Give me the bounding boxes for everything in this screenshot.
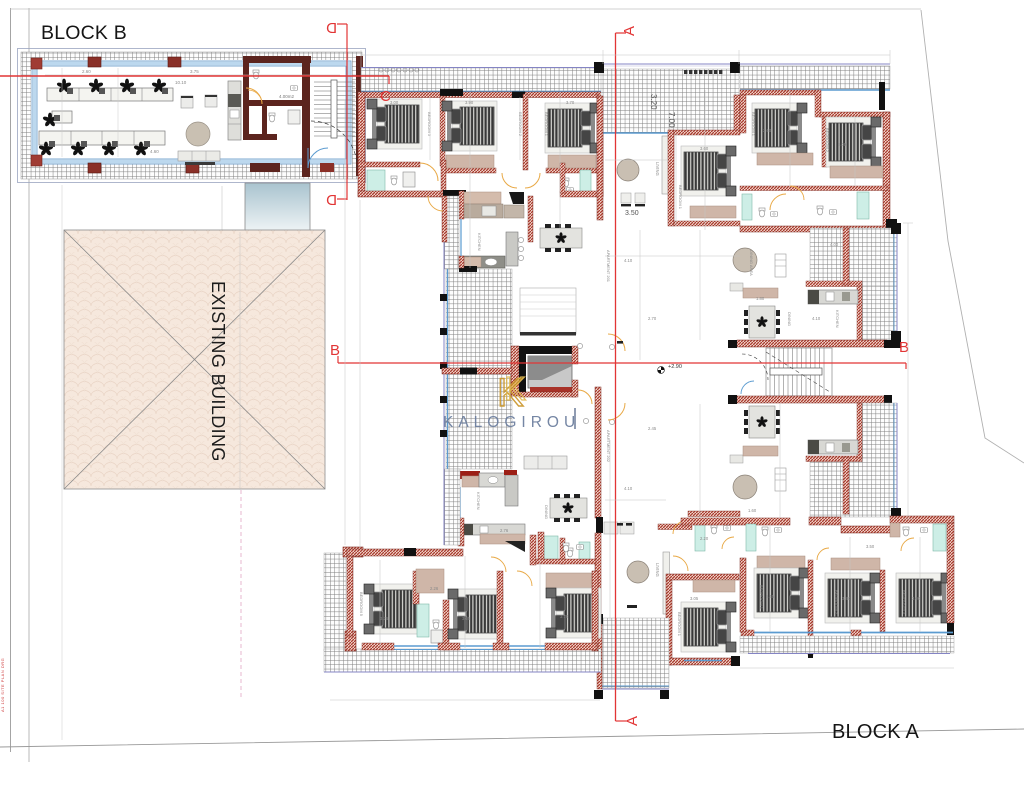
- svg-text:BEDROOM 1: BEDROOM 1: [678, 185, 683, 210]
- svg-text:K: K: [504, 370, 526, 407]
- svg-text:3.05: 3.05: [690, 596, 699, 601]
- svg-text:3.75: 3.75: [190, 69, 199, 74]
- svg-text:KITCHEN: KITCHEN: [477, 233, 482, 251]
- svg-text:3.00: 3.00: [838, 142, 847, 147]
- svg-text:EXISTING BUILDING: EXISTING BUILDING: [208, 281, 228, 462]
- svg-text:+2.90: +2.90: [668, 364, 682, 370]
- svg-text:4.00: 4.00: [830, 242, 839, 247]
- svg-text:7.00: 7.00: [667, 112, 676, 128]
- svg-text:BEDROOM 1: BEDROOM 1: [677, 612, 682, 637]
- svg-text:3.00: 3.00: [912, 596, 921, 601]
- svg-text:BEDROOM 2: BEDROOM 2: [825, 128, 830, 153]
- svg-text:4.10: 4.10: [812, 316, 821, 321]
- svg-text:4.00m2: 4.00m2: [279, 94, 295, 99]
- svg-text:BEDROOM 2: BEDROOM 2: [834, 590, 839, 615]
- svg-text:D: D: [326, 19, 337, 36]
- svg-text:LIVING: LIVING: [655, 162, 660, 176]
- svg-text:3.90: 3.90: [465, 100, 474, 105]
- svg-text:4.10: 4.10: [624, 486, 633, 491]
- svg-text:DINING: DINING: [544, 505, 549, 519]
- svg-text:BEDROOM 1: BEDROOM 1: [544, 112, 549, 137]
- svg-text:APARTMENT 201: APARTMENT 201: [606, 250, 611, 283]
- svg-text:3.65: 3.65: [766, 594, 775, 599]
- svg-text:BLOCK A: BLOCK A: [832, 721, 919, 743]
- svg-text:1.60: 1.60: [748, 508, 757, 513]
- svg-text:3.70: 3.70: [560, 614, 569, 619]
- svg-text:3.20: 3.20: [649, 94, 658, 110]
- svg-text:BEDROOM 2: BEDROOM 2: [518, 112, 523, 137]
- svg-text:BEDROOM 3: BEDROOM 3: [427, 112, 432, 137]
- svg-text:3.50: 3.50: [866, 544, 875, 549]
- svg-text:A1 100 SITE PLAN DRG: A1 100 SITE PLAN DRG: [0, 658, 5, 712]
- svg-text:APARTMENT 202: APARTMENT 202: [606, 430, 611, 463]
- svg-text:LIVING: LIVING: [655, 563, 660, 577]
- svg-text:4.60: 4.60: [150, 149, 159, 154]
- svg-text:A: A: [621, 26, 638, 36]
- svg-text:2.20: 2.20: [700, 536, 709, 541]
- svg-text:10.10: 10.10: [175, 80, 187, 85]
- svg-text:KALOGIROU: KALOGIROU: [443, 414, 580, 431]
- svg-text:3.00: 3.00: [390, 100, 399, 105]
- svg-text:2.70: 2.70: [648, 316, 657, 321]
- svg-text:B: B: [330, 342, 340, 359]
- svg-text:3.65: 3.65: [462, 616, 471, 621]
- svg-text:3.60: 3.60: [700, 146, 709, 151]
- svg-text:1.80: 1.80: [756, 296, 765, 301]
- svg-text:2.76: 2.76: [500, 528, 509, 533]
- svg-text:DINING AREA: DINING AREA: [749, 250, 754, 276]
- svg-text:3.60: 3.60: [763, 128, 772, 133]
- svg-text:D: D: [326, 191, 337, 208]
- svg-text:2.60: 2.60: [82, 69, 91, 74]
- svg-text:3.40: 3.40: [842, 596, 851, 601]
- svg-text:BEDROOM 3: BEDROOM 3: [902, 590, 907, 615]
- svg-text:3.70: 3.70: [566, 100, 575, 105]
- svg-text:2.26: 2.26: [430, 586, 439, 591]
- svg-text:DINING: DINING: [787, 312, 792, 326]
- svg-text:BEDROOM 5: BEDROOM 5: [359, 592, 364, 617]
- svg-text:B: B: [899, 339, 909, 356]
- svg-text:BLOCK B: BLOCK B: [41, 22, 127, 44]
- svg-text:3.26: 3.26: [380, 616, 389, 621]
- svg-text:2.45: 2.45: [648, 426, 657, 431]
- svg-text:KITCHEN: KITCHEN: [476, 492, 481, 510]
- svg-text:BEDROOM 1: BEDROOM 1: [759, 585, 764, 610]
- svg-text:3.50: 3.50: [625, 210, 639, 217]
- svg-text:BEDROOM 1: BEDROOM 1: [751, 112, 756, 137]
- svg-text:A: A: [624, 716, 641, 726]
- svg-text:KITCHEN: KITCHEN: [835, 310, 840, 328]
- svg-text:4.10: 4.10: [624, 258, 633, 263]
